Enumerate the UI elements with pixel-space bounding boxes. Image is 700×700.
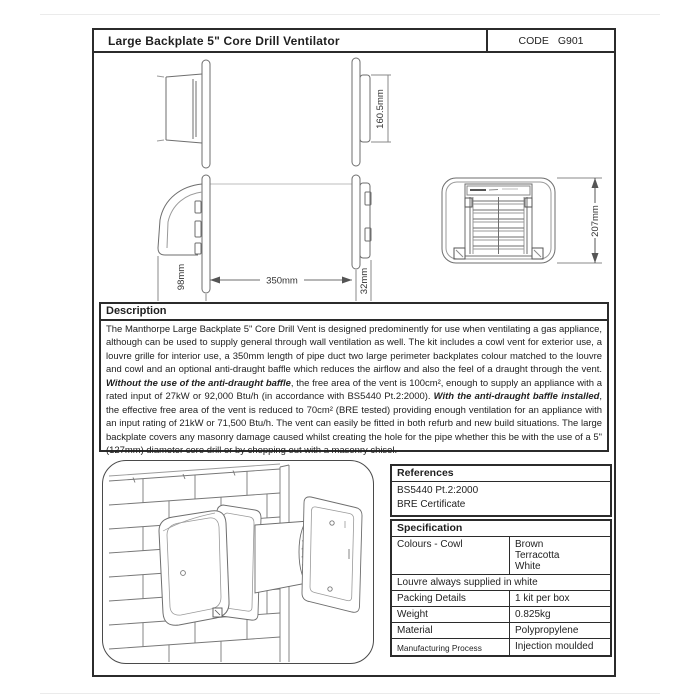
specification-table: Specification Colours - Cowl Brown Terra… (390, 519, 612, 657)
code-label: CODE (518, 35, 548, 47)
spec-row-packing: Packing Details 1 kit per box (392, 591, 610, 607)
colour-option: Brown (515, 539, 605, 550)
installation-illustration-svg (103, 461, 372, 662)
dim-160-label: 160.5mm (375, 89, 386, 129)
datasheet-page: { "header": { "title": "Large Backplate … (0, 0, 700, 700)
spec-value-packing: 1 kit per box (510, 591, 610, 606)
colour-option: Terracotta (515, 550, 605, 561)
page-edge-top (40, 14, 660, 15)
spec-value-manufacturing: Injection moulded (510, 639, 610, 655)
spec-louvre-note: Louvre always supplied in white (392, 575, 610, 591)
dim-350-label: 350mm (266, 276, 298, 287)
spec-label-weight: Weight (392, 607, 510, 622)
code-value: G901 (558, 35, 584, 47)
page-edge-bottom (40, 693, 660, 694)
dimension-drawings-svg: 160.5mm (94, 51, 614, 301)
side-view-top (157, 58, 391, 168)
interior-backplate (302, 497, 362, 612)
bottom-section: References BS5440 Pt.2:2000 BRE Certific… (94, 460, 614, 670)
dim-98-label: 98mm (176, 264, 187, 290)
description-heading: Description (101, 304, 607, 321)
spec-value-colours: Brown Terracotta White (510, 537, 610, 574)
references-heading: References (392, 466, 610, 482)
references-body: BS5440 Pt.2:2000 BRE Certificate (392, 482, 610, 515)
reference-item: BS5440 Pt.2:2000 (397, 484, 605, 498)
spec-label-manufacturing: Manufacturing Process (392, 639, 510, 655)
datasheet-frame: Large Backplate 5" Core Drill Ventilator… (92, 28, 616, 677)
description-bold1: Without the use of the anti-draught baff… (106, 378, 291, 389)
specification-heading: Specification (392, 521, 610, 537)
spec-label-colours: Colours - Cowl (392, 537, 510, 574)
product-code-cell: CODE G901 (486, 30, 614, 51)
header-bar: Large Backplate 5" Core Drill Ventilator… (94, 30, 614, 53)
reference-item: BRE Certificate (397, 498, 605, 512)
side-view-bottom (158, 175, 371, 301)
dim-207-label: 207mm (590, 205, 601, 237)
cowl-vent (159, 511, 229, 626)
description-seg1: The Manthorpe Large Backplate 5" Core Dr… (106, 324, 602, 375)
spec-row-material: Material Polypropylene (392, 623, 610, 639)
spec-row-colours: Colours - Cowl Brown Terracotta White (392, 537, 610, 575)
colour-option: White (515, 561, 605, 572)
spec-row-weight: Weight 0.825kg (392, 607, 610, 623)
spec-row-manufacturing: Manufacturing Process Injection moulded (392, 639, 610, 655)
spec-value-weight: 0.825kg (510, 607, 610, 622)
spec-value-material: Polypropylene (510, 623, 610, 638)
spec-label-material: Material (392, 623, 510, 638)
front-view-louvre (442, 178, 602, 263)
description-bold2: With the anti-draught baffle installed (434, 391, 600, 402)
page-title: Large Backplate 5" Core Drill Ventilator (94, 34, 486, 48)
spec-label-packing: Packing Details (392, 591, 510, 606)
technical-drawings: 160.5mm (94, 51, 614, 301)
references-table: References BS5440 Pt.2:2000 BRE Certific… (390, 464, 612, 517)
dim-32-label: 32mm (359, 268, 370, 294)
description-section: Description The Manthorpe Large Backplat… (99, 302, 609, 452)
installation-illustration-box (102, 460, 374, 664)
description-text: The Manthorpe Large Backplate 5" Core Dr… (101, 321, 607, 460)
